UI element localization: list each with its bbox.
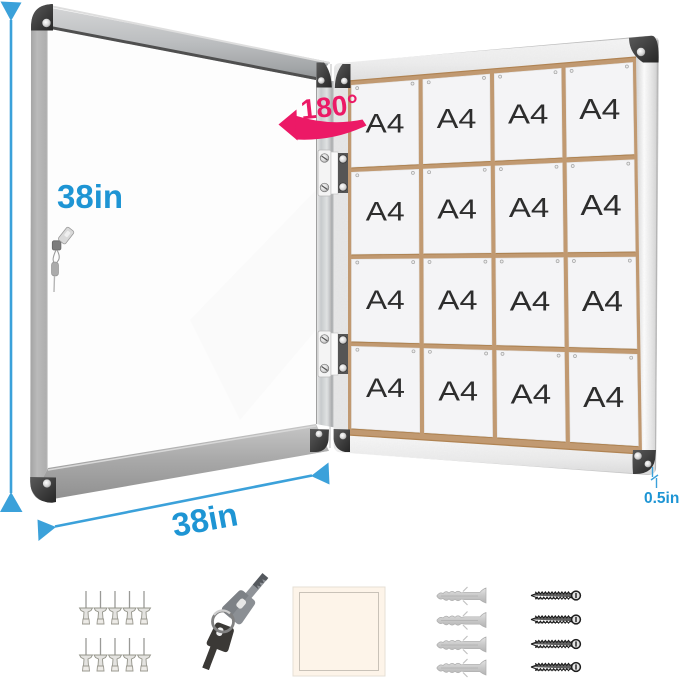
svg-text:A4: A4: [366, 195, 405, 226]
svg-text:38in: 38in: [57, 178, 123, 215]
svg-text:A4: A4: [366, 372, 405, 403]
svg-text:A4: A4: [581, 189, 622, 221]
svg-text:A4: A4: [438, 375, 478, 406]
svg-text:A4: A4: [508, 98, 548, 129]
svg-text:A4: A4: [509, 192, 549, 223]
svg-text:A4: A4: [437, 103, 477, 134]
svg-text:A4: A4: [438, 284, 478, 315]
svg-text:A4: A4: [582, 285, 623, 317]
svg-text:A4: A4: [583, 381, 624, 413]
svg-text:A4: A4: [366, 107, 405, 138]
svg-text:A4: A4: [437, 194, 477, 225]
svg-text:0.5in: 0.5in: [644, 490, 679, 507]
svg-text:A4: A4: [579, 93, 620, 125]
svg-text:A4: A4: [510, 285, 550, 316]
svg-text:A4: A4: [511, 379, 551, 410]
svg-text:A4: A4: [366, 284, 405, 315]
